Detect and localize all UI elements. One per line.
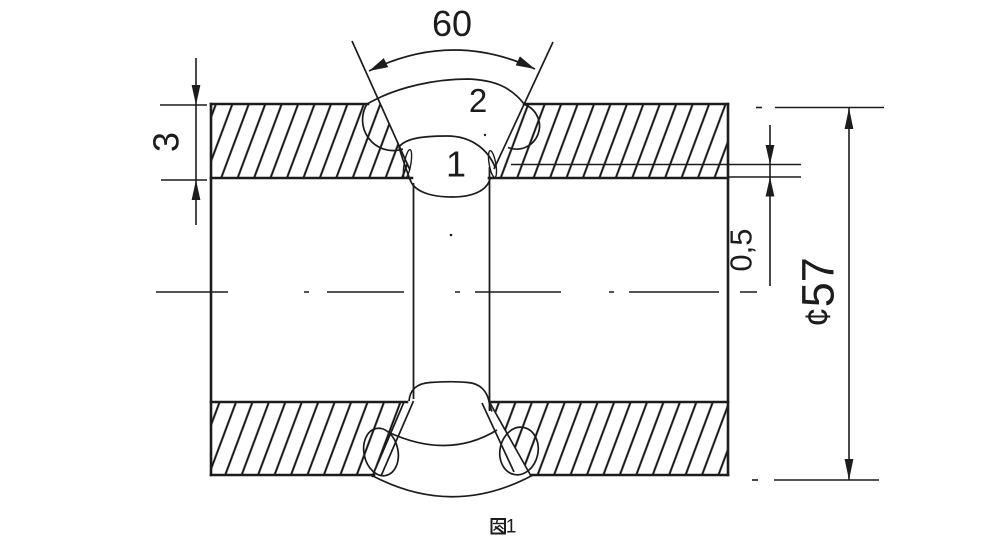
svg-text:1: 1 bbox=[446, 144, 466, 185]
svg-text:1: 1 bbox=[506, 517, 517, 538]
svg-text:¢57: ¢57 bbox=[793, 257, 844, 327]
svg-text:3: 3 bbox=[146, 132, 187, 152]
svg-text:0,5: 0,5 bbox=[724, 228, 759, 271]
svg-text:2: 2 bbox=[469, 82, 487, 119]
svg-text:60: 60 bbox=[432, 3, 472, 44]
